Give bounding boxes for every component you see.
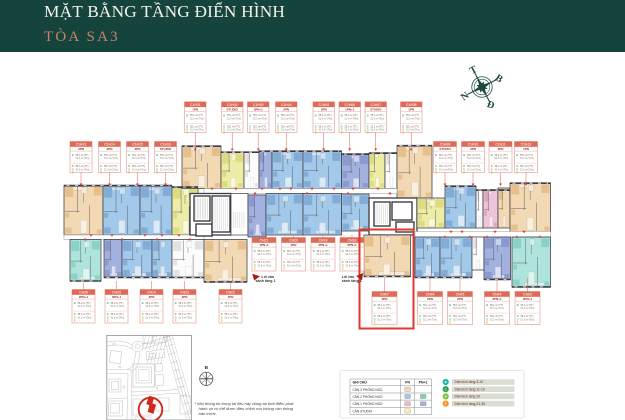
svg-text:3PN+1: 3PN+1 [112, 295, 122, 299]
svg-text:55.1 m² (TT): 55.1 m² (TT) [104, 154, 117, 157]
svg-text:51.3 m² (Tim): 51.3 m² (Tim) [281, 117, 295, 120]
svg-text:55.1 m² (TT): 55.1 m² (TT) [146, 313, 159, 316]
svg-text:55.1 m² (TT): 55.1 m² (TT) [253, 114, 266, 117]
svg-text:55.1 m² (TT): 55.1 m² (TT) [179, 302, 192, 305]
svg-text:55.1 m² (TT): 55.1 m² (TT) [281, 125, 294, 128]
svg-text:51.3 m² (Tim): 51.3 m² (Tim) [423, 318, 437, 321]
svg-text:CH21: CH21 [260, 239, 269, 243]
svg-text:B: B [342, 249, 344, 253]
svg-text:C1H04: C1H04 [281, 103, 292, 107]
svg-text:E: E [128, 170, 130, 174]
svg-text:CH20: CH20 [289, 239, 298, 243]
svg-text:STUDIO: STUDIO [439, 147, 451, 151]
svg-text:55.1 m² (TT): 55.1 m² (TT) [467, 165, 480, 168]
svg-text:CH03: CH03 [523, 293, 532, 297]
svg-text:51.3 m² (Tim): 51.3 m² (Tim) [146, 305, 160, 308]
svg-text:55.1 m² (TT): 55.1 m² (TT) [160, 165, 173, 168]
svg-text:E: E [107, 318, 109, 322]
svg-text:51.3 m² (Tim): 51.3 m² (Tim) [111, 316, 125, 319]
svg-text:51.3 m² (Tim): 51.3 m² (Tim) [406, 117, 420, 120]
svg-text:55.1 m² (TT): 55.1 m² (TT) [258, 250, 271, 253]
svg-text:E: E [72, 170, 74, 174]
svg-text:CH24: CH24 [147, 291, 156, 295]
svg-text:E: E [367, 131, 369, 135]
svg-text:B: B [516, 153, 518, 157]
svg-text:MẶT BẰNG TẦNG ĐIỂN HÌNH: MẶT BẰNG TẦNG ĐIỂN HÌNH [44, 2, 285, 21]
svg-text:51.3 m² (Tim): 51.3 m² (Tim) [190, 129, 204, 132]
svg-text:51.3 m² (Tim): 51.3 m² (Tim) [345, 129, 359, 132]
svg-text:E: E [516, 170, 518, 174]
svg-text:E: E [419, 320, 421, 324]
svg-text:51.3 m² (Tim): 51.3 m² (Tim) [78, 305, 92, 308]
svg-text:E: E [249, 131, 251, 135]
svg-text:51.3 m² (Tim): 51.3 m² (Tim) [520, 168, 534, 171]
svg-text:51.3 m² (Tim): 51.3 m² (Tim) [495, 157, 509, 160]
svg-text:55.1 m² (TT): 55.1 m² (TT) [160, 154, 173, 157]
svg-text:CH26: CH26 [79, 291, 88, 295]
svg-text:55.1 m² (TT): 55.1 m² (TT) [345, 114, 358, 117]
svg-text:PN: PN [405, 381, 410, 385]
svg-text:E: E [342, 266, 344, 270]
svg-text:C1H05: C1H05 [319, 103, 330, 107]
svg-text:51.3 m² (Tim): 51.3 m² (Tim) [287, 253, 301, 256]
svg-text:B: B [486, 303, 488, 307]
svg-text:E: E [517, 320, 519, 324]
svg-text:51.3 m² (Tim): 51.3 m² (Tim) [467, 157, 481, 160]
svg-text:51.3 m² (Tim): 51.3 m² (Tim) [179, 305, 193, 308]
svg-text:CH23: CH23 [180, 291, 189, 295]
svg-text:51.3 m² (Tim): 51.3 m² (Tim) [346, 264, 360, 267]
svg-text:2PN+1: 2PN+1 [79, 295, 89, 299]
svg-text:STUDIO: STUDIO [227, 107, 239, 111]
svg-text:51.3 m² (Tim): 51.3 m² (Tim) [227, 129, 241, 132]
svg-text:51.3 m² (Tim): 51.3 m² (Tim) [225, 316, 239, 319]
svg-text:GHI CHÚ: GHI CHÚ [353, 380, 368, 385]
svg-text:51.3 m² (Tim): 51.3 m² (Tim) [190, 117, 204, 120]
svg-text:51.3 m² (Tim): 51.3 m² (Tim) [453, 307, 467, 310]
svg-text:51.3 m² (Tim): 51.3 m² (Tim) [287, 264, 301, 267]
svg-text:1PN: 1PN [523, 147, 529, 151]
svg-text:B: B [175, 301, 177, 305]
svg-text:C1H14: C1H14 [104, 143, 115, 147]
svg-text:55.1 m² (TT): 55.1 m² (TT) [371, 125, 384, 128]
svg-text:CĂN 2 PHÒNG NGỦ: CĂN 2 PHÒNG NGỦ [353, 394, 384, 399]
svg-text:51.3 m² (Tim): 51.3 m² (Tim) [520, 157, 534, 160]
svg-text:1PN: 1PN [228, 295, 234, 299]
svg-text:51.3 m² (Tim): 51.3 m² (Tim) [76, 168, 90, 171]
svg-text:51.3 m² (Tim): 51.3 m² (Tim) [490, 318, 504, 321]
svg-text:55.1 m² (TT): 55.1 m² (TT) [490, 315, 503, 318]
svg-text:STUDIO: STUDIO [370, 107, 382, 111]
svg-text:55.1 m² (TT): 55.1 m² (TT) [132, 165, 145, 168]
svg-text:E: E [142, 318, 144, 322]
svg-text:55.1 m² (TT): 55.1 m² (TT) [495, 154, 508, 157]
svg-text:STUDIO: STUDIO [160, 147, 172, 151]
svg-text:55.1 m² (TT): 55.1 m² (TT) [227, 125, 240, 128]
svg-text:2PN: 2PN [182, 295, 188, 299]
svg-text:Diện tích tầng 21-35: Diện tích tầng 21-35 [455, 402, 486, 406]
svg-text:B: B [463, 153, 465, 157]
svg-text:E: E [74, 318, 76, 322]
svg-text:B: B [254, 249, 256, 253]
svg-text:55.1 m² (TT): 55.1 m² (TT) [345, 125, 358, 128]
svg-text:55.1 m² (TT): 55.1 m² (TT) [227, 114, 240, 117]
svg-text:PN+1: PN+1 [419, 381, 428, 385]
svg-text:51.3 m² (Tim): 51.3 m² (Tim) [371, 129, 385, 132]
svg-text:51.3 m² (Tim): 51.3 m² (Tim) [406, 129, 420, 132]
svg-text:55.1 m² (TT): 55.1 m² (TT) [520, 165, 533, 168]
svg-text:51.3 m² (Tim): 51.3 m² (Tim) [258, 264, 272, 267]
svg-text:E: E [221, 318, 223, 322]
svg-text:55.1 m² (TT): 55.1 m² (TT) [439, 165, 452, 168]
svg-text:51.3 m² (Tim): 51.3 m² (Tim) [346, 253, 360, 256]
svg-text:51.3 m² (Tim): 51.3 m² (Tim) [253, 117, 267, 120]
svg-text:51.3 m² (Tim): 51.3 m² (Tim) [78, 316, 92, 319]
svg-text:C1H16: C1H16 [160, 143, 171, 147]
svg-text:C1H01: C1H01 [190, 103, 201, 107]
svg-text:B: B [277, 113, 279, 117]
svg-text:B: B [402, 113, 404, 117]
svg-text:C1H06: C1H06 [345, 103, 356, 107]
svg-text:E: E [449, 320, 451, 324]
svg-text:2PN: 2PN [470, 147, 476, 151]
svg-text:51.3 m² (Tim): 51.3 m² (Tim) [160, 168, 174, 171]
svg-text:CĂN STUDIO: CĂN STUDIO [353, 409, 373, 413]
svg-text:55.1 m² (TT): 55.1 m² (TT) [146, 302, 159, 305]
svg-text:55.1 m² (TT): 55.1 m² (TT) [467, 154, 480, 157]
svg-text:51.3 m² (Tim): 51.3 m² (Tim) [225, 305, 239, 308]
svg-text:55.1 m² (TT): 55.1 m² (TT) [253, 125, 266, 128]
svg-text:55.1 m² (TT): 55.1 m² (TT) [111, 313, 124, 316]
svg-text:E: E [277, 131, 279, 135]
svg-text:55.1 m² (TT): 55.1 m² (TT) [453, 304, 466, 307]
svg-text:B: B [283, 249, 285, 253]
svg-text:51.3 m² (Tim): 51.3 m² (Tim) [423, 307, 437, 310]
svg-text:B: B [449, 303, 451, 307]
svg-text:CH22: CH22 [226, 291, 235, 295]
svg-text:B: B [156, 153, 158, 157]
svg-text:E: E [186, 131, 188, 135]
svg-text:51.3 m² (Tim): 51.3 m² (Tim) [495, 168, 509, 171]
svg-text:B: B [419, 303, 421, 307]
svg-text:B: B [100, 153, 102, 157]
svg-text:51.3 m² (Tim): 51.3 m² (Tim) [439, 157, 453, 160]
svg-text:2PN: 2PN [149, 295, 155, 299]
svg-text:2PN: 2PN [457, 297, 463, 301]
svg-text:55.1 m² (TT): 55.1 m² (TT) [319, 125, 332, 128]
svg-text:51.3 m² (Tim): 51.3 m² (Tim) [160, 157, 174, 160]
svg-text:2PN: 2PN [498, 147, 504, 151]
svg-text:Diện tích tầng 20: Diện tích tầng 20 [455, 395, 481, 399]
svg-text:B: B [72, 153, 74, 157]
svg-text:TÒA SA3: TÒA SA3 [44, 28, 120, 45]
svg-text:51.3 m² (Tim): 51.3 m² (Tim) [467, 168, 481, 171]
svg-text:B: B [315, 113, 317, 117]
svg-text:55.1 m² (TT): 55.1 m² (TT) [190, 125, 203, 128]
svg-text:55.1 m² (TT): 55.1 m² (TT) [179, 313, 192, 316]
svg-text:C1H07: C1H07 [371, 103, 382, 107]
svg-text:55.1 m² (TT): 55.1 m² (TT) [406, 125, 419, 128]
svg-text:B: B [517, 303, 519, 307]
svg-text:55.1 m² (TT): 55.1 m² (TT) [281, 114, 294, 117]
svg-text:51.3 m² (Tim): 51.3 m² (Tim) [253, 129, 267, 132]
svg-text:55.1 m² (TT): 55.1 m² (TT) [423, 304, 436, 307]
svg-text:55.1 m² (TT): 55.1 m² (TT) [346, 261, 359, 264]
svg-text:1PN+1: 1PN+1 [254, 107, 264, 111]
svg-text:B: B [249, 113, 251, 117]
svg-text:E: E [341, 131, 343, 135]
svg-text:55.1 m² (TT): 55.1 m² (TT) [490, 304, 503, 307]
svg-text:55.1 m² (TT): 55.1 m² (TT) [78, 313, 91, 316]
svg-text:C1H08: C1H08 [406, 103, 417, 107]
svg-text:CH18: CH18 [348, 239, 357, 243]
svg-text:51.3 m² (Tim): 51.3 m² (Tim) [146, 316, 160, 319]
svg-text:CH25: CH25 [112, 291, 121, 295]
svg-text:1PN: 1PN [408, 107, 414, 111]
svg-text:51.3 m² (Tim): 51.3 m² (Tim) [281, 129, 295, 132]
svg-text:C1H15: C1H15 [132, 143, 143, 147]
svg-text:51.3 m² (Tim): 51.3 m² (Tim) [490, 307, 504, 310]
svg-text:1PN: 1PN [192, 107, 198, 111]
svg-text:B: B [221, 301, 223, 305]
svg-text:2PN: 2PN [291, 243, 297, 247]
svg-text:51.3 m² (Tim): 51.3 m² (Tim) [317, 264, 331, 267]
svg-text:55.1 m² (TT): 55.1 m² (TT) [76, 165, 89, 168]
svg-text:C1H09: C1H09 [440, 143, 451, 147]
svg-text:3PN: 3PN [382, 297, 388, 301]
svg-text:E: E [100, 170, 102, 174]
svg-text:51.3 m² (Tim): 51.3 m² (Tim) [371, 117, 385, 120]
svg-text:B: B [313, 249, 315, 253]
svg-text:B: B [341, 113, 343, 117]
svg-text:55.1 m² (TT): 55.1 m² (TT) [453, 315, 466, 318]
svg-text:51.3 m² (Tim): 51.3 m² (Tim) [258, 253, 272, 256]
svg-text:55.1 m² (TT): 55.1 m² (TT) [495, 165, 508, 168]
svg-text:1PN+1: 1PN+1 [259, 243, 269, 247]
svg-text:55.1 m² (TT): 55.1 m² (TT) [319, 114, 332, 117]
svg-text:51.3 m² (Tim): 51.3 m² (Tim) [378, 318, 392, 321]
svg-text:55.1 m² (TT): 55.1 m² (TT) [346, 250, 359, 253]
svg-text:51.3 m² (Tim): 51.3 m² (Tim) [521, 307, 535, 310]
svg-text:55.1 m² (TT): 55.1 m² (TT) [225, 302, 238, 305]
svg-text:51.3 m² (Tim): 51.3 m² (Tim) [227, 117, 241, 120]
svg-text:55.1 m² (TT): 55.1 m² (TT) [439, 154, 452, 157]
svg-text:51.3 m² (Tim): 51.3 m² (Tim) [453, 318, 467, 321]
svg-text:51.3 m² (Tim): 51.3 m² (Tim) [104, 168, 118, 171]
svg-text:E: E [315, 131, 317, 135]
svg-text:55.1 m² (TT): 55.1 m² (TT) [371, 114, 384, 117]
svg-text:báo trước.: báo trước. [199, 411, 218, 416]
svg-text:Đ: Đ [445, 395, 447, 399]
svg-text:B: B [445, 380, 447, 384]
svg-text:55.1 m² (TT): 55.1 m² (TT) [76, 154, 89, 157]
svg-text:E: E [486, 320, 488, 324]
svg-text:2PN: 2PN [283, 107, 289, 111]
svg-text:B: B [367, 113, 369, 117]
svg-text:55.1 m² (TT): 55.1 m² (TT) [520, 154, 533, 157]
svg-text:51.3 m² (Tim): 51.3 m² (Tim) [345, 117, 359, 120]
svg-text:B: B [186, 113, 188, 117]
svg-text:51.3 m² (Tim): 51.3 m² (Tim) [132, 168, 146, 171]
svg-text:CH19: CH19 [319, 239, 328, 243]
svg-text:B: B [142, 301, 144, 305]
svg-text:3PN+1: 3PN+1 [347, 243, 357, 247]
svg-text:E: E [402, 131, 404, 135]
svg-text:C: C [445, 387, 447, 391]
svg-text:B: B [374, 303, 376, 307]
svg-text:CĂN 3 PHÒNG NGỦ: CĂN 3 PHÒNG NGỦ [353, 387, 384, 392]
svg-text:C1H12: C1H12 [521, 143, 532, 147]
svg-text:E: E [374, 320, 376, 324]
svg-text:C1H10: C1H10 [468, 143, 479, 147]
svg-text:2PN: 2PN [135, 147, 141, 151]
svg-text:55.1 m² (TT): 55.1 m² (TT) [111, 302, 124, 305]
svg-text:E: E [254, 266, 256, 270]
svg-text:55.1 m² (TT): 55.1 m² (TT) [378, 304, 391, 307]
svg-text:2PN: 2PN [427, 297, 433, 301]
svg-text:51.3 m² (Tim): 51.3 m² (Tim) [104, 157, 118, 160]
svg-text:C1H11: C1H11 [495, 143, 505, 147]
svg-text:CH07: CH07 [380, 293, 389, 297]
svg-text:55.1 m² (TT): 55.1 m² (TT) [406, 114, 419, 117]
svg-text:55.1 m² (TT): 55.1 m² (TT) [287, 250, 300, 253]
svg-text:51.3 m² (Tim): 51.3 m² (Tim) [132, 157, 146, 160]
svg-text:2PN: 2PN [78, 147, 84, 151]
svg-text:B: B [491, 153, 493, 157]
svg-text:B: B [223, 113, 225, 117]
svg-text:C1H03: C1H03 [253, 103, 264, 107]
svg-text:E: E [283, 266, 285, 270]
svg-text:51.3 m² (Tim): 51.3 m² (Tim) [76, 157, 90, 160]
svg-text:55.1 m² (TT): 55.1 m² (TT) [317, 250, 330, 253]
svg-text:55.1 m² (TT): 55.1 m² (TT) [78, 302, 91, 305]
svg-text:E: E [435, 170, 437, 174]
svg-text:B: B [435, 153, 437, 157]
svg-text:51.3 m² (Tim): 51.3 m² (Tim) [111, 305, 125, 308]
svg-text:Diện tích tầng 3-10: Diện tích tầng 3-10 [455, 380, 484, 384]
svg-text:55.1 m² (TT): 55.1 m² (TT) [190, 114, 203, 117]
svg-text:CH05: CH05 [456, 293, 465, 297]
svg-text:55.1 m² (TT): 55.1 m² (TT) [378, 315, 391, 318]
svg-text:B: B [74, 301, 76, 305]
svg-text:55.1 m² (TT): 55.1 m² (TT) [287, 261, 300, 264]
svg-text:51.3 m² (Tim): 51.3 m² (Tim) [319, 117, 333, 120]
svg-text:E: E [175, 318, 177, 322]
svg-text:E: E [223, 131, 225, 135]
svg-text:B: B [107, 301, 109, 305]
svg-text:1PN+1: 1PN+1 [345, 107, 355, 111]
svg-text:E: E [491, 170, 493, 174]
svg-text:55.1 m² (TT): 55.1 m² (TT) [521, 304, 534, 307]
svg-text:CĂN 1 PHÒNG NGỦ: CĂN 1 PHÒNG NGỦ [353, 401, 384, 406]
svg-text:C1H02: C1H02 [227, 103, 238, 107]
svg-text:51.3 m² (Tim): 51.3 m² (Tim) [179, 316, 193, 319]
svg-text:55.1 m² (TT): 55.1 m² (TT) [225, 313, 238, 316]
svg-text:2PN: 2PN [321, 107, 327, 111]
svg-text:51.3 m² (Tim): 51.3 m² (Tim) [317, 253, 331, 256]
svg-text:B: B [205, 365, 209, 371]
svg-text:3PN+1: 3PN+1 [318, 243, 328, 247]
svg-text:55.1 m² (TT): 55.1 m² (TT) [258, 261, 271, 264]
svg-text:CH04: CH04 [493, 293, 502, 297]
svg-text:55.1 m² (TT): 55.1 m² (TT) [104, 165, 117, 168]
svg-text:55.1 m² (TT): 55.1 m² (TT) [132, 154, 145, 157]
svg-text:55.1 m² (TT): 55.1 m² (TT) [317, 261, 330, 264]
svg-text:CH06: CH06 [426, 293, 435, 297]
svg-text:51.3 m² (Tim): 51.3 m² (Tim) [439, 168, 453, 171]
svg-text:Diện tích tầng 11-19: Diện tích tầng 11-19 [455, 387, 485, 391]
svg-text:3PN+1: 3PN+1 [492, 297, 502, 301]
svg-text:51.3 m² (Tim): 51.3 m² (Tim) [521, 318, 535, 321]
svg-text:55.1 m² (TT): 55.1 m² (TT) [521, 315, 534, 318]
svg-text:2PN: 2PN [107, 147, 113, 151]
svg-text:E: E [156, 170, 158, 174]
svg-text:E: E [313, 266, 315, 270]
svg-text:sảnh tầng 1: sảnh tầng 1 [256, 279, 276, 283]
svg-text:E: E [445, 402, 447, 406]
svg-text:2PN+1: 2PN+1 [523, 297, 533, 301]
svg-text:51.3 m² (Tim): 51.3 m² (Tim) [319, 129, 333, 132]
svg-text:C1H13: C1H13 [76, 143, 87, 147]
svg-text:51.3 m² (Tim): 51.3 m² (Tim) [378, 307, 392, 310]
svg-text:55.1 m² (TT): 55.1 m² (TT) [423, 315, 436, 318]
svg-text:E: E [463, 170, 465, 174]
svg-text:sảnh tầng 1: sảnh tầng 1 [342, 279, 362, 283]
svg-text:B: B [128, 153, 130, 157]
